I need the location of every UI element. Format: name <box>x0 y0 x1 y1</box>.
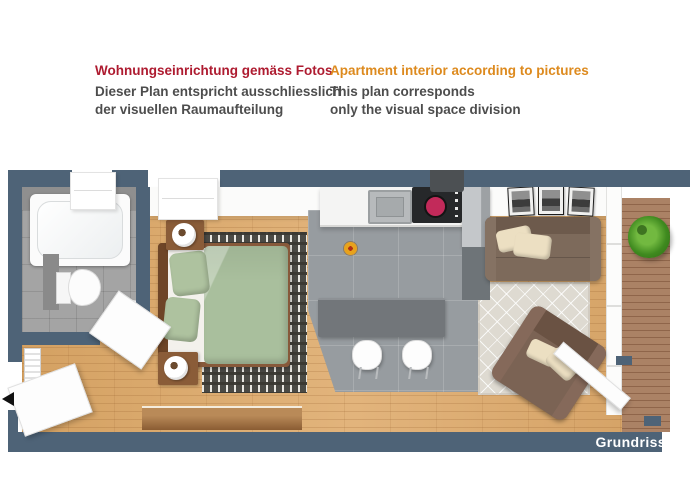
bathroom-bottom-wall <box>22 332 100 345</box>
wall-picture <box>538 186 564 215</box>
header-english-title: Apartment interior according to pictures <box>330 62 630 80</box>
sink-basin <box>376 197 404 217</box>
window-sill-line <box>162 198 214 199</box>
extractor-hood <box>430 170 464 192</box>
plan-label: Grundriss <box>595 432 666 452</box>
bathroom-window <box>70 172 116 210</box>
wall-notch <box>616 356 632 365</box>
picture-art <box>571 191 590 213</box>
left-wall <box>8 170 22 362</box>
sofa-armrest <box>590 217 601 281</box>
header-english: Apartment interior according to pictures… <box>330 62 630 119</box>
bed-pillow <box>169 250 211 297</box>
bottom-wall <box>8 432 662 452</box>
bedroom-window <box>158 178 218 220</box>
header-english-line1: This plan corresponds <box>330 83 630 101</box>
picture-art <box>542 190 560 211</box>
table-lamp <box>164 356 188 380</box>
potted-plant <box>628 216 670 258</box>
burner <box>424 195 447 218</box>
table-lamp <box>172 223 196 247</box>
header-english-line2: only the visual space division <box>330 101 630 119</box>
top-wall-segment <box>20 170 72 187</box>
window-frame-bar <box>606 243 622 245</box>
floor-plan: Grundriss <box>8 170 690 452</box>
entrance-arrow-icon <box>2 392 14 406</box>
bar-counter <box>318 298 445 337</box>
sideboard <box>142 406 302 430</box>
window-frame-bar <box>606 305 622 307</box>
sofa-cushion <box>513 232 553 260</box>
kitchen-sink <box>368 190 412 224</box>
flower-decoration <box>344 242 357 255</box>
sofa-armrest <box>485 217 496 281</box>
bed-pillow <box>162 296 201 342</box>
cooktop <box>412 187 462 223</box>
window-sill-line <box>74 190 112 191</box>
wall-picture <box>507 186 534 216</box>
bar-stool <box>352 340 382 370</box>
wall-notch <box>644 416 661 426</box>
wall-picture <box>567 186 594 216</box>
cooktop-knobs <box>455 191 458 217</box>
green-duvet <box>204 246 288 364</box>
stool-legs <box>358 367 379 379</box>
picture-art <box>511 191 530 213</box>
window-frame-bar <box>606 365 622 367</box>
top-wall-segment <box>112 170 148 187</box>
bar-stool <box>402 340 432 370</box>
stool-legs <box>408 367 429 379</box>
